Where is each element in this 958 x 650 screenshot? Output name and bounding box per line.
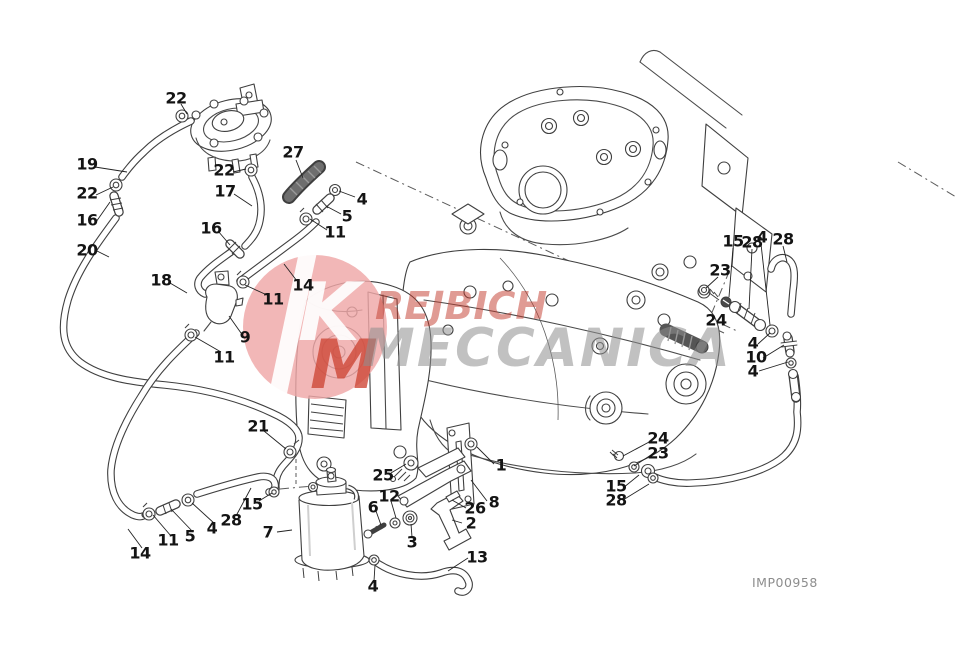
callout-layer: 2219221620221716182745111411911211528451… — [0, 0, 958, 650]
callout-4: 4 — [757, 228, 768, 247]
callout-5: 5 — [185, 527, 196, 546]
callout-27: 27 — [282, 143, 303, 162]
callout-21: 21 — [247, 417, 268, 436]
callout-2: 2 — [466, 514, 477, 533]
callout-17: 17 — [214, 182, 235, 201]
callout-20: 20 — [76, 241, 97, 260]
callout-19: 19 — [76, 155, 97, 174]
parts-diagram: M K REJBICH MECCANICA 221922162022171618… — [0, 0, 958, 650]
callout-28: 28 — [220, 511, 241, 530]
callout-25: 25 — [372, 466, 393, 485]
callout-6: 6 — [368, 498, 379, 517]
callout-15: 15 — [241, 495, 262, 514]
callout-8: 8 — [489, 493, 500, 512]
callout-23: 23 — [647, 444, 668, 463]
callout-22: 22 — [165, 89, 186, 108]
callout-23: 23 — [709, 261, 730, 280]
callout-11: 11 — [324, 223, 345, 242]
callout-1: 1 — [496, 456, 507, 475]
callout-18: 18 — [150, 271, 171, 290]
callout-3: 3 — [407, 533, 418, 552]
callout-4: 4 — [357, 190, 368, 209]
callout-13: 13 — [466, 548, 487, 567]
callout-22: 22 — [213, 161, 234, 180]
callout-28: 28 — [605, 491, 626, 510]
callout-4: 4 — [748, 362, 759, 381]
callout-4: 4 — [368, 577, 379, 596]
callout-11: 11 — [157, 531, 178, 550]
callout-7: 7 — [263, 523, 274, 542]
callout-16: 16 — [200, 219, 221, 238]
callout-9: 9 — [240, 328, 251, 347]
callout-28: 28 — [772, 230, 793, 249]
callout-12: 12 — [378, 487, 399, 506]
callout-14: 14 — [129, 544, 150, 563]
callout-4: 4 — [207, 519, 218, 538]
callout-11: 11 — [262, 290, 283, 309]
callout-14: 14 — [292, 276, 313, 295]
figure-code: IMP00958 — [752, 575, 818, 590]
callout-24: 24 — [705, 311, 726, 330]
callout-22: 22 — [76, 184, 97, 203]
callout-11: 11 — [213, 348, 234, 367]
callout-16: 16 — [76, 211, 97, 230]
